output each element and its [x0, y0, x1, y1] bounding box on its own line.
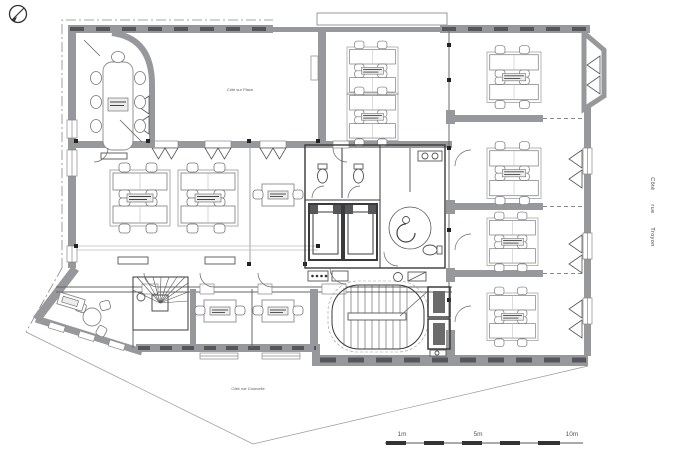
terrace: Côté sur Place [227, 87, 254, 92]
street-label-right: Côté rue Troyon [649, 177, 655, 246]
radiator [205, 257, 235, 264]
door-swing [312, 186, 324, 198]
desk-cluster [487, 142, 541, 205]
door-swing [455, 306, 471, 322]
desk-cluster [110, 163, 170, 233]
desk-cluster [487, 212, 538, 271]
door-swing [455, 150, 471, 166]
street-label-bottom: Côté rue Courcelle [231, 386, 265, 391]
main-stair [308, 271, 428, 352]
door-swing [384, 252, 398, 266]
sanitary-core [305, 145, 445, 268]
toilet [354, 164, 364, 183]
desk-cluster [178, 163, 238, 233]
window-chevron-icon [569, 150, 582, 188]
single-desk [253, 184, 303, 206]
door-swing [455, 234, 471, 250]
window-chevron-icon [569, 300, 582, 338]
desk-cluster [487, 287, 538, 347]
floor-plan-canvas: Côté sur Place [0, 0, 680, 465]
door-swing [348, 186, 360, 198]
single-desk [195, 300, 245, 322]
door-swing [333, 148, 347, 162]
desk-cluster [347, 87, 398, 147]
radiator [118, 257, 148, 264]
scale-tick-1m: 1m [397, 431, 406, 438]
window-chevron-icon [569, 235, 582, 273]
accessible-wc [389, 207, 442, 255]
terrace-label: Côté sur Place [227, 87, 254, 92]
scale-bar: 1m 5m 10m [385, 431, 583, 443]
scale-tick-10m: 10m [566, 431, 579, 438]
corridor [118, 150, 471, 322]
single-desk [253, 300, 303, 322]
north-arrow-icon [10, 6, 27, 23]
toilet [318, 164, 328, 183]
winding-stair [133, 277, 188, 330]
scale-tick-5m: 5m [473, 431, 482, 438]
desk-cluster [487, 46, 541, 109]
floor-plan-page: Côté sur Place [0, 0, 680, 465]
